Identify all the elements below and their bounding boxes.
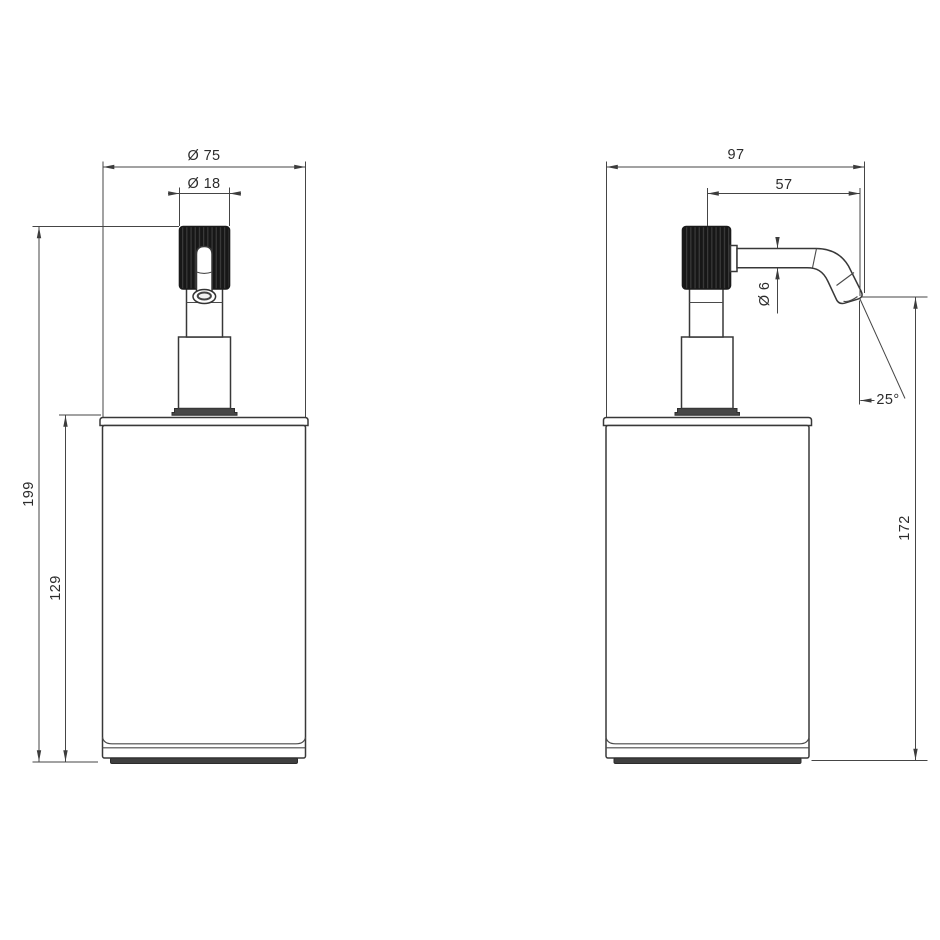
side-view: [604, 162, 928, 764]
bottle-body-front: [103, 426, 306, 759]
pump-flange-side: [675, 409, 740, 416]
dim-label-front-overall-diameter: Ø 75: [187, 149, 220, 164]
dim-label-side-spout-tube-diameter: Ø 6: [758, 282, 773, 307]
bottle-body-side: [606, 426, 809, 759]
dim-label-side-spout-angle: 25°: [876, 393, 899, 408]
pump-neck-side: [690, 289, 724, 338]
drawing-linework: [0, 0, 940, 940]
front-view: [33, 162, 309, 764]
pump-collar-front: [179, 337, 231, 409]
bottle-rim-side: [604, 418, 812, 426]
dispenser-side: [604, 227, 863, 764]
dim-label-front-pump-cap-diameter: Ø 18: [187, 177, 220, 192]
nozzle-front: [197, 247, 213, 292]
pump-flange-front: [172, 409, 237, 416]
dim-label-front-body-height: 129: [49, 575, 64, 600]
pump-cap-side: [683, 227, 731, 290]
dim-label-side-spout-reach: 57: [776, 178, 793, 193]
dim-label-side-overall-depth: 97: [728, 148, 745, 163]
bottle-base-front: [111, 758, 298, 764]
bottle-base-side: [614, 758, 801, 764]
dim-label-side-height-to-spout: 172: [898, 515, 913, 540]
pump-collar-side: [682, 337, 734, 409]
technical-drawing-canvas: Ø 75 Ø 18 199 129 97 57 Ø 6 25° 172: [0, 0, 940, 940]
bottle-rim-front: [100, 418, 308, 426]
dispenser-front: [100, 227, 308, 764]
nozzle-opening-front: [198, 293, 211, 300]
dim-label-front-total-height: 199: [22, 481, 37, 506]
spout-connector: [731, 246, 738, 272]
